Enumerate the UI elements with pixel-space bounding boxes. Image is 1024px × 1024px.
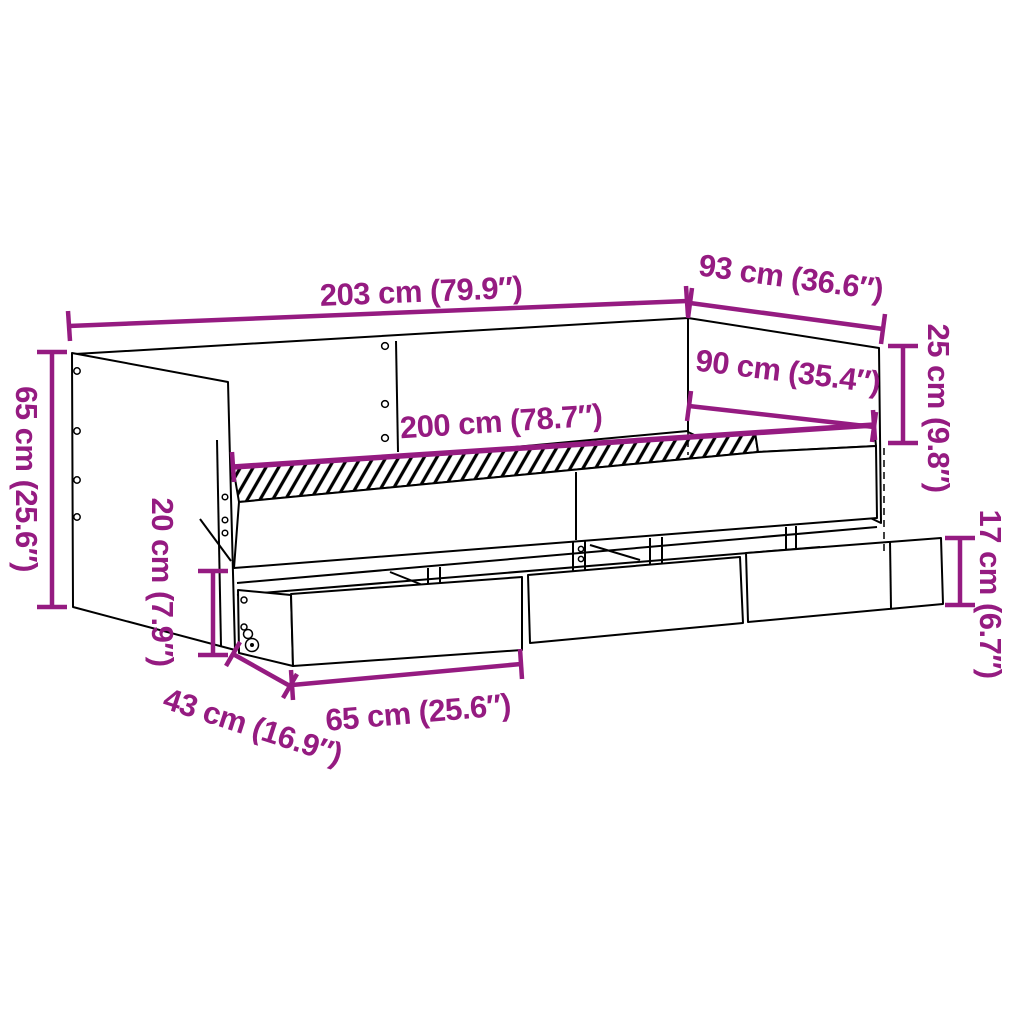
dim-label-side-height: 65 cm (25.6″) bbox=[9, 386, 44, 572]
drawer-right-seam bbox=[890, 541, 891, 608]
screw-dot bbox=[222, 494, 228, 500]
dim-label-total-depth: 93 cm (36.6″) bbox=[697, 248, 886, 308]
diagram-canvas: 203 cm (79.9″) 93 cm (36.6″) 25 cm (9.8″… bbox=[0, 0, 1024, 1024]
screw-dot bbox=[74, 477, 80, 483]
screw-dot bbox=[382, 401, 389, 408]
dimension-side-height: 65 cm (25.6″) bbox=[9, 352, 67, 607]
dim-label-drawer-height: 17 cm (6.7″) bbox=[973, 509, 1008, 678]
screw-dot bbox=[74, 428, 80, 434]
screw-dot bbox=[222, 530, 228, 536]
screw-dot bbox=[382, 343, 389, 350]
dim-label-drawer-pullout: 43 cm (16.9″) bbox=[159, 681, 347, 772]
screw-dot bbox=[241, 597, 247, 603]
screw-dot bbox=[74, 368, 80, 374]
drawer-middle-front bbox=[528, 557, 743, 643]
screw-dot bbox=[74, 514, 80, 520]
dim-label-under-clearance: 20 cm (7.9″) bbox=[145, 497, 180, 666]
screw-dot bbox=[222, 517, 228, 523]
dimension-drawer-height: 17 cm (6.7″) bbox=[945, 509, 1008, 678]
dim-label-backrest-height: 25 cm (9.8″) bbox=[921, 323, 956, 492]
dimension-backrest-height: 25 cm (9.8″) bbox=[888, 323, 956, 492]
drawer-right-front bbox=[746, 538, 943, 622]
drawer-left-front bbox=[291, 577, 522, 666]
dim-label-total-length: 203 cm (79.9″) bbox=[319, 270, 523, 313]
daybed-dimension-diagram: 203 cm (79.9″) 93 cm (36.6″) 25 cm (9.8″… bbox=[0, 0, 1024, 1024]
screw-dot bbox=[241, 624, 247, 630]
dim-label-drawer-width: 65 cm (25.6″) bbox=[324, 687, 512, 738]
screw-dot bbox=[382, 435, 389, 442]
